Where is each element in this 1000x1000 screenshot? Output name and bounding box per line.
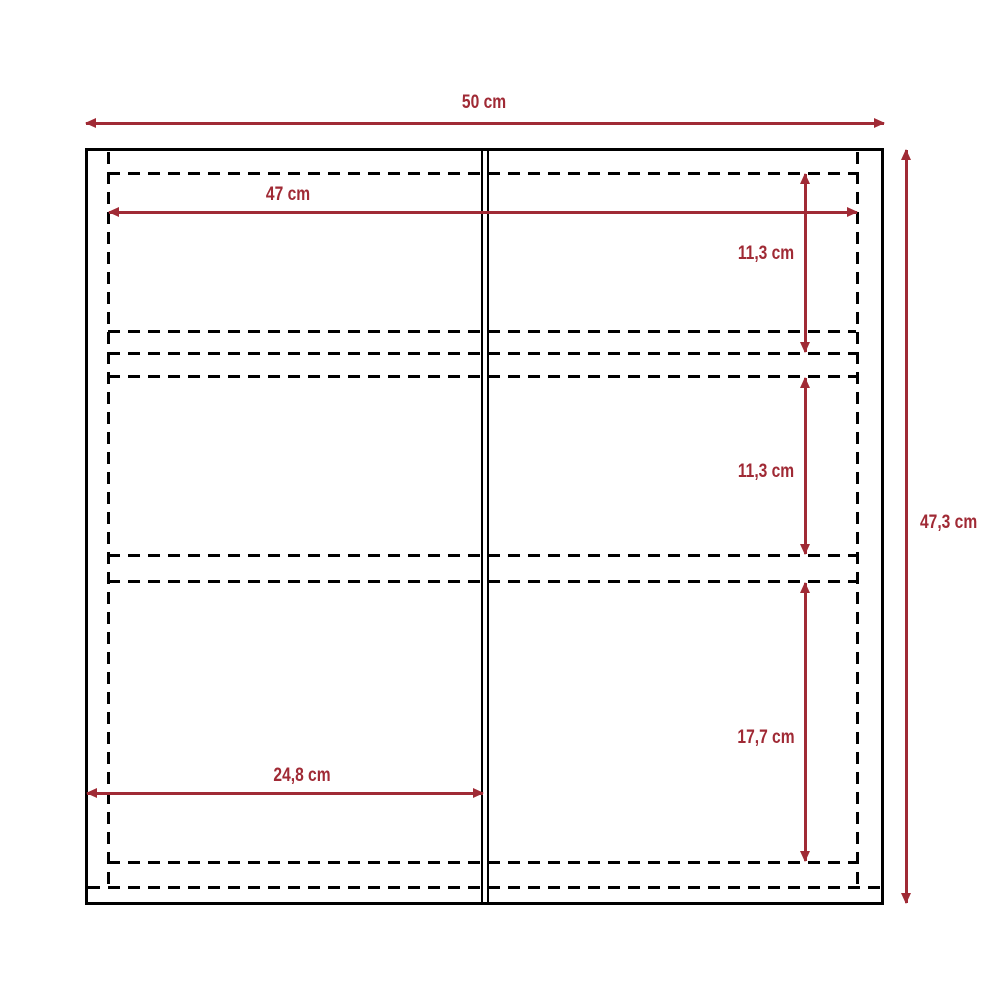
- label-inner-width: 47 cm: [266, 184, 310, 206]
- label-middle-section-height: 11,3 cm: [738, 461, 794, 483]
- door-gap-line-right: [487, 150, 489, 903]
- arrowhead-right-icon: [847, 207, 858, 217]
- right-panel-hidden-edge: [856, 152, 859, 888]
- arrowhead-left-icon: [108, 207, 119, 217]
- arrowhead-up-icon: [901, 149, 911, 160]
- arrowhead-down-icon: [800, 851, 810, 862]
- arrowhead-left-icon: [86, 788, 97, 798]
- dimension-line-overall-width: [86, 122, 884, 125]
- shelf-1-upper-edge: [108, 330, 856, 333]
- arrowhead-right-icon: [874, 118, 885, 128]
- dimension-line-overall-height: [905, 150, 908, 903]
- dimension-line-inner-width: [109, 211, 857, 214]
- shelf-1-top-face: [108, 352, 856, 355]
- bottom-panel-top-face: [108, 861, 856, 864]
- arrowhead-up-icon: [800, 377, 810, 388]
- arrowhead-down-icon: [901, 893, 911, 904]
- shelf-1-bottom-face: [108, 375, 856, 378]
- top-panel-hidden-edge: [108, 172, 856, 175]
- arrowhead-down-icon: [800, 544, 810, 555]
- label-overall-height: 47,3 cm: [920, 512, 977, 534]
- shelf-2-bottom-face: [108, 580, 856, 583]
- arrowhead-up-icon: [800, 582, 810, 593]
- arrowhead-up-icon: [800, 173, 810, 184]
- shelf-2-top-face: [108, 554, 856, 557]
- label-door-width: 24,8 cm: [273, 765, 330, 787]
- bottom-panel-hidden-edge: [88, 886, 882, 889]
- label-overall-width: 50 cm: [462, 92, 506, 114]
- dimension-line-door-width: [87, 792, 483, 795]
- cabinet-dimension-diagram: 50 cm 47 cm 24,8 cm 47,3 cm 11,3 cm 11,3…: [0, 0, 1000, 1000]
- dimension-line-middle-section: [804, 378, 807, 554]
- dimension-line-bottom-section: [804, 583, 807, 861]
- arrowhead-down-icon: [800, 342, 810, 353]
- left-panel-hidden-edge: [107, 152, 110, 888]
- arrowhead-right-icon: [473, 788, 484, 798]
- arrowhead-left-icon: [85, 118, 96, 128]
- label-top-section-height: 11,3 cm: [738, 243, 794, 265]
- dimension-line-top-section: [804, 174, 807, 352]
- label-bottom-section-height: 17,7 cm: [737, 727, 794, 749]
